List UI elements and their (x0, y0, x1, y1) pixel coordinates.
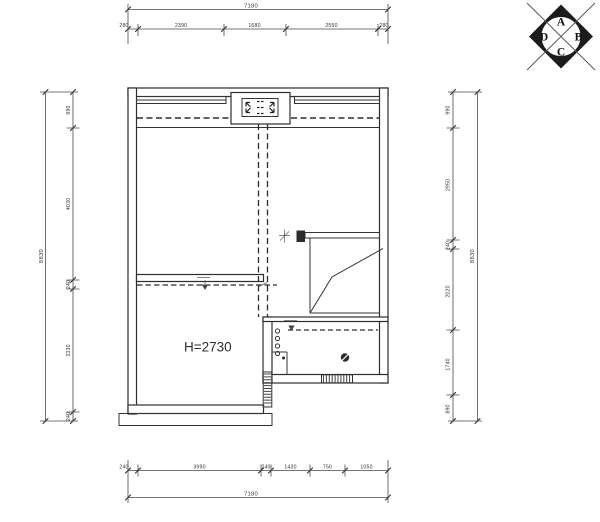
dim-bottom-seg-4: 750 (323, 465, 332, 471)
dim-right-seg-5: 890 (446, 404, 452, 413)
door-mark-arrow-icon (202, 285, 208, 291)
dim-left-seg-2: 240 (66, 280, 72, 289)
wall-pier (297, 231, 306, 243)
dim-bottom-seg-5: 1050 (360, 465, 372, 471)
dim-top-seg-1: 2390 (175, 23, 187, 29)
compass-letter-left: D (540, 32, 548, 44)
dim-right-seg-2: 240 (446, 241, 452, 250)
fixture-circle (275, 336, 279, 340)
wall-left (128, 88, 137, 414)
dim-left-seg-0: 990 (66, 105, 72, 114)
wall-right (380, 88, 389, 383)
floor-plan-drawing: 7180 280 2390 1680 2550 280 7180 240 399… (0, 0, 600, 522)
entry-slab (119, 414, 272, 426)
dim-bottom-seg-0: 240 (119, 465, 128, 471)
compass-letter-top: A (557, 17, 566, 29)
dashed-lines (137, 118, 380, 330)
wall-interior (137, 275, 264, 282)
dim-bottom-seg-3: 1430 (284, 465, 296, 471)
dim-bottom-seg-2: 240 (261, 465, 270, 471)
stair-outline (310, 238, 380, 313)
dim-top-seg-0: 280 (119, 23, 128, 29)
counter-edge (305, 233, 380, 239)
compass-letter-right: B (575, 32, 583, 44)
orientation-compass-icon: A B C D (527, 3, 595, 70)
dimension-top: 7180 280 2390 1680 2550 280 (119, 4, 390, 45)
fixture-dot (282, 357, 285, 360)
opening-mark (279, 230, 290, 243)
shaft-box-outer (231, 93, 290, 125)
stair-area (297, 231, 384, 314)
shaft-box (231, 93, 290, 125)
dim-right-seg-1: 2950 (446, 179, 452, 191)
dim-left-total: 8830 (39, 249, 45, 263)
floor-plan-page: 7180 280 2390 1680 2550 280 7180 240 399… (0, 0, 600, 522)
dim-left-slashes (43, 89, 76, 424)
dim-left-lines (40, 92, 78, 421)
dim-top-total: 7180 (244, 4, 258, 10)
wall-bath-top (263, 317, 388, 322)
dim-bottom-total: 7180 (244, 492, 258, 498)
bathroom (263, 322, 352, 408)
dim-bottom-seg-1: 3990 (193, 465, 205, 471)
room-height-label: H=2730 (184, 340, 232, 355)
fixture-circle (275, 344, 279, 348)
dim-right-seg-3: 2020 (446, 285, 452, 297)
dimension-right: 8830 990 2950 240 2020 1740 890 (446, 89, 483, 424)
dim-right-seg-4: 1740 (446, 358, 452, 370)
dim-top-seg-4: 280 (379, 23, 388, 29)
dimension-bottom: 7180 240 3990 240 1430 750 1050 (119, 460, 390, 503)
dim-left-seg-1: 4030 (66, 198, 72, 210)
dim-right-lines (448, 92, 482, 421)
dim-top-seg-3: 2550 (325, 23, 337, 29)
dim-left-seg-4: 240 (66, 412, 72, 421)
compass-letter-bottom: C (557, 47, 565, 59)
wall-bottom-left (128, 405, 264, 414)
fixture-circle (275, 329, 279, 333)
dim-top-seg-2: 1680 (248, 23, 260, 29)
stair-diagonal (310, 249, 383, 314)
dim-right-total: 8830 (470, 249, 476, 263)
wall-bath-left (263, 317, 272, 383)
dim-left-seg-3: 3330 (66, 344, 72, 356)
flue-duct-dashed (259, 124, 268, 317)
dimension-left: 8830 990 4030 240 3330 240 (39, 89, 80, 424)
wall-bottom-right (263, 375, 388, 384)
dim-right-seg-0: 990 (446, 105, 452, 114)
